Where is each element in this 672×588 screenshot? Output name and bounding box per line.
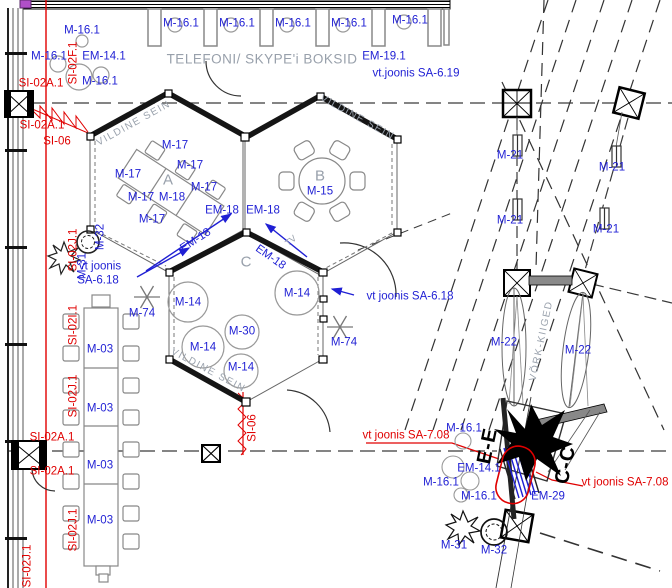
furniture-label-m17: M-17 (162, 140, 188, 152)
ref-si-02f-1: SI-02F.1 (68, 42, 80, 85)
furniture-label-m03: M-03 (87, 344, 113, 356)
furniture-label-m74: M-74 (331, 337, 357, 349)
column-small (202, 445, 220, 462)
room-letter-b: B (315, 169, 325, 184)
ref-si-02j-1: SI-02J.1 (22, 545, 34, 588)
column-right-1 (503, 90, 531, 117)
booth-label-m16-1: M-16.1 (392, 15, 428, 27)
ref-si-02i-1: SI-02I.1 (68, 305, 80, 345)
em-label-em18: EM-18 (205, 205, 239, 217)
floor-plan: M-16.1 M-16.1 EM-14.1 M-16.1 SI-02F.1 SI… (0, 0, 672, 588)
ref-si-02a-1: SI-02A.1 (30, 466, 75, 478)
furniture-label-m16-1: M-16.1 (461, 491, 497, 503)
ref-si-02a-1: SI-02A.1 (30, 432, 75, 444)
furniture-label-m22: M-22 (491, 337, 517, 349)
wall-marker (20, 0, 31, 8)
furniture-label-m16-1: M-16.1 (423, 477, 459, 489)
furniture-label-m30: M-30 (229, 326, 255, 338)
column-left-top (5, 91, 33, 117)
furniture-label-m03: M-03 (87, 403, 113, 415)
booth-label-m16-1: M-16.1 (163, 18, 199, 30)
furniture-label-m14: M-14 (190, 342, 216, 354)
drawing-ref-sa-6-18: vt joonis SA-6.18 (367, 291, 454, 303)
room-letter-c: C (241, 255, 252, 270)
em-label-em18: EM-18 (246, 205, 280, 217)
furniture-label-m16-1: M-16.1 (82, 76, 118, 88)
furniture-label-m17: M-17 (128, 192, 154, 204)
ref-si-06: SI-06 (247, 414, 259, 442)
furniture-label-m21: M-21 (497, 215, 523, 227)
furniture-label-m16-1: M-16.1 (31, 51, 67, 63)
ref-si-02a-1: SI-02A.1 (19, 78, 64, 90)
furniture-label-m32: M-32 (481, 545, 507, 557)
drawing-ref-sa-7-08: vt joonis SA-7.08 (582, 477, 669, 489)
furniture-label-m14: M-14 (175, 297, 201, 309)
furniture-label-m16-1: M-16.1 (446, 423, 482, 435)
furniture-label-m18: M-18 (159, 192, 185, 204)
column-right-3 (504, 270, 530, 296)
furniture-label-m32: M-32 (95, 224, 107, 250)
furniture-label-m16-1: M-16.1 (64, 25, 100, 37)
furniture-label-m17: M-17 (115, 169, 141, 181)
beam (529, 276, 572, 285)
furniture-label-m03: M-03 (87, 515, 113, 527)
furniture-label-m21: M-21 (593, 224, 619, 236)
furniture-label-m17: M-17 (139, 214, 165, 226)
room-letter-a: A (163, 173, 173, 188)
booth-label-m16-1: M-16.1 (275, 18, 311, 30)
em-label-em29: EM-29 (531, 491, 565, 503)
drawing-ref-sa-6-19: vt.joonis SA-6.19 (373, 68, 460, 80)
em-label-em14-1: EM-14.1 (82, 51, 125, 63)
furniture-label-m14: M-14 (228, 362, 254, 374)
furniture-label-m21: M-21 (497, 150, 523, 162)
furniture-label-m14: M-14 (284, 288, 310, 300)
furniture-label-m22: M-22 (565, 345, 591, 357)
booth-label-m16-1: M-16.1 (219, 18, 255, 30)
ref-si-02a-1: SI-02A.1 (20, 120, 65, 132)
furniture-label-m74: M-74 (129, 308, 155, 320)
ref-si-02j-1: SI-02J.1 (68, 375, 80, 418)
furniture-label-m31: M-31 (441, 540, 467, 552)
top-wall (20, 0, 450, 9)
furniture-label-m03: M-03 (87, 460, 113, 472)
furniture-label-m15: M-15 (307, 186, 333, 198)
furniture-label-m31: M-31 (77, 253, 89, 279)
column-right-2 (613, 87, 645, 119)
ref-si-06: SI-06 (43, 136, 71, 148)
furniture-label-m17: M-17 (191, 182, 217, 194)
area-title-phone-booths: TELEFONI/ SKYPE'i BOKSID (167, 52, 358, 66)
em-label-em19-1: EM-19.1 (362, 51, 405, 63)
drawing-ref-sa-7-08: vt joonis SA-7.08 (363, 430, 450, 442)
furniture-label-m21: M-21 (599, 162, 625, 174)
furniture-label-m17: M-17 (177, 160, 203, 172)
ref-si-02j-1: SI-02J.1 (68, 509, 80, 552)
floor-plan-drawing (0, 0, 672, 588)
booth-label-m16-1: M-16.1 (331, 18, 367, 30)
